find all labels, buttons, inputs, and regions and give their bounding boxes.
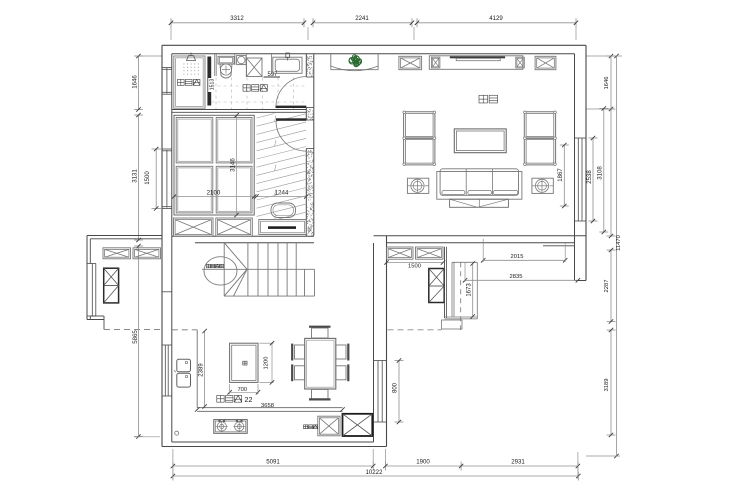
svg-text:3146: 3146 bbox=[230, 158, 237, 172]
svg-text:2835: 2835 bbox=[510, 274, 523, 280]
svg-text:3131: 3131 bbox=[132, 169, 139, 183]
svg-text:1200: 1200 bbox=[263, 357, 269, 370]
svg-text:3189: 3189 bbox=[604, 379, 610, 392]
svg-text:1867: 1867 bbox=[558, 168, 564, 182]
svg-text:800: 800 bbox=[393, 382, 399, 393]
svg-text:2287: 2287 bbox=[604, 280, 610, 293]
svg-text:5091: 5091 bbox=[266, 459, 280, 466]
svg-text:1646: 1646 bbox=[132, 75, 139, 89]
svg-text:1500: 1500 bbox=[408, 264, 421, 270]
svg-text:2931: 2931 bbox=[511, 459, 525, 466]
svg-text:1646: 1646 bbox=[604, 77, 610, 90]
svg-text:2100: 2100 bbox=[207, 189, 221, 196]
svg-text:1513: 1513 bbox=[210, 79, 216, 91]
svg-text:2538: 2538 bbox=[586, 170, 593, 184]
svg-text:22: 22 bbox=[245, 395, 253, 404]
svg-text:1500: 1500 bbox=[144, 171, 151, 185]
svg-text:10222: 10222 bbox=[366, 469, 384, 476]
svg-text:5865: 5865 bbox=[132, 330, 139, 344]
svg-text:3658: 3658 bbox=[261, 403, 274, 409]
svg-text:700: 700 bbox=[237, 387, 247, 393]
svg-text:3108: 3108 bbox=[596, 166, 603, 180]
svg-text:4129: 4129 bbox=[489, 15, 503, 22]
svg-text:2241: 2241 bbox=[355, 15, 369, 22]
svg-text:2015: 2015 bbox=[511, 254, 524, 260]
svg-text:1900: 1900 bbox=[416, 459, 430, 466]
svg-text:11470: 11470 bbox=[616, 235, 622, 251]
svg-text:3312: 3312 bbox=[230, 15, 244, 22]
svg-text:2389: 2389 bbox=[198, 363, 204, 377]
svg-text:1673: 1673 bbox=[466, 283, 472, 297]
svg-text:1244: 1244 bbox=[275, 189, 289, 196]
